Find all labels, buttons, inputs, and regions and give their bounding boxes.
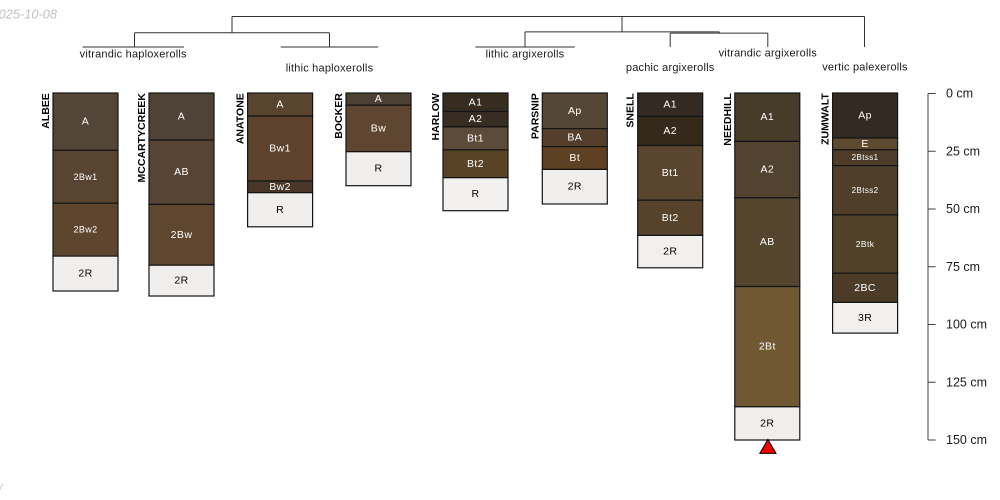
svg-text:lithic haploxerolls: lithic haploxerolls — [286, 62, 374, 74]
svg-text:Ap: Ap — [858, 110, 872, 122]
svg-text:Bw1: Bw1 — [269, 143, 291, 155]
svg-text:25 cm: 25 cm — [946, 144, 980, 158]
svg-text:A: A — [375, 93, 382, 105]
svg-text:NEEDHILL: NEEDHILL — [722, 93, 734, 146]
svg-text:2BC: 2BC — [854, 282, 876, 294]
svg-text:ZUMWALT: ZUMWALT — [820, 93, 832, 145]
svg-text://: // — [0, 481, 4, 496]
svg-text:A1: A1 — [663, 99, 677, 111]
svg-text:lithic argixerolls: lithic argixerolls — [486, 48, 565, 60]
svg-text:PARSNIP: PARSNIP — [529, 93, 541, 139]
svg-text:AB: AB — [760, 236, 775, 248]
svg-text:A: A — [276, 99, 283, 111]
svg-text:Bt1: Bt1 — [467, 132, 484, 144]
svg-text:A2: A2 — [663, 125, 677, 137]
svg-text:Bw: Bw — [371, 122, 386, 134]
svg-text:A1: A1 — [469, 96, 483, 108]
svg-text:AB: AB — [174, 166, 189, 178]
svg-text:R: R — [276, 204, 284, 216]
svg-text:BOCKER: BOCKER — [333, 93, 345, 139]
svg-text:2Bw1: 2Bw1 — [73, 172, 97, 182]
svg-text:vertic palexerolls: vertic palexerolls — [822, 62, 908, 74]
svg-text:MCCARTYCREEK: MCCARTYCREEK — [136, 93, 148, 183]
svg-text:2R: 2R — [760, 417, 774, 429]
svg-text:E: E — [861, 138, 868, 150]
svg-text:vitrandic haploxerolls: vitrandic haploxerolls — [80, 48, 187, 60]
svg-text:Ap: Ap — [568, 105, 582, 117]
svg-text:2R: 2R — [174, 275, 188, 287]
svg-text:Bw2: Bw2 — [269, 181, 291, 193]
svg-text:2025-10-08: 2025-10-08 — [0, 7, 58, 22]
svg-text:75 cm: 75 cm — [946, 260, 980, 274]
svg-text:2Btk: 2Btk — [856, 239, 875, 249]
svg-text:ANATONE: ANATONE — [235, 93, 247, 144]
svg-text:2Bw2: 2Bw2 — [73, 225, 97, 235]
svg-text:pachic argixerolls: pachic argixerolls — [626, 62, 715, 74]
svg-text:Bt1: Bt1 — [662, 167, 679, 179]
svg-text:BA: BA — [567, 132, 582, 144]
svg-text:Bt: Bt — [569, 152, 580, 164]
svg-text:2Btss2: 2Btss2 — [852, 186, 879, 195]
svg-text:Bt2: Bt2 — [467, 158, 484, 170]
svg-text:vitrandic argixerolls: vitrandic argixerolls — [719, 48, 818, 60]
svg-text:0 cm: 0 cm — [946, 87, 973, 101]
svg-text:2R: 2R — [663, 246, 677, 258]
svg-text:A1: A1 — [760, 111, 774, 123]
svg-text:ALBEE: ALBEE — [40, 93, 52, 129]
svg-text:R: R — [375, 163, 383, 175]
svg-text:HARLOW: HARLOW — [430, 93, 442, 140]
svg-text:A2: A2 — [760, 164, 774, 176]
svg-text:SNELL: SNELL — [625, 93, 637, 128]
svg-text:50 cm: 50 cm — [946, 202, 980, 216]
svg-text:A: A — [178, 111, 185, 123]
svg-text:2Bt: 2Bt — [759, 341, 776, 353]
svg-text:125 cm: 125 cm — [946, 375, 987, 389]
svg-text:2R: 2R — [568, 181, 582, 193]
svg-text:A: A — [82, 116, 89, 128]
svg-text:3R: 3R — [858, 312, 872, 324]
svg-text:A2: A2 — [469, 113, 483, 125]
svg-text:150 cm: 150 cm — [946, 433, 987, 447]
svg-text:100 cm: 100 cm — [946, 318, 987, 332]
svg-text:2Bw: 2Bw — [171, 229, 193, 241]
svg-text:2R: 2R — [78, 268, 92, 280]
svg-text:Bt2: Bt2 — [662, 212, 679, 224]
svg-text:2Btss1: 2Btss1 — [852, 153, 879, 162]
svg-text:R: R — [472, 188, 480, 200]
